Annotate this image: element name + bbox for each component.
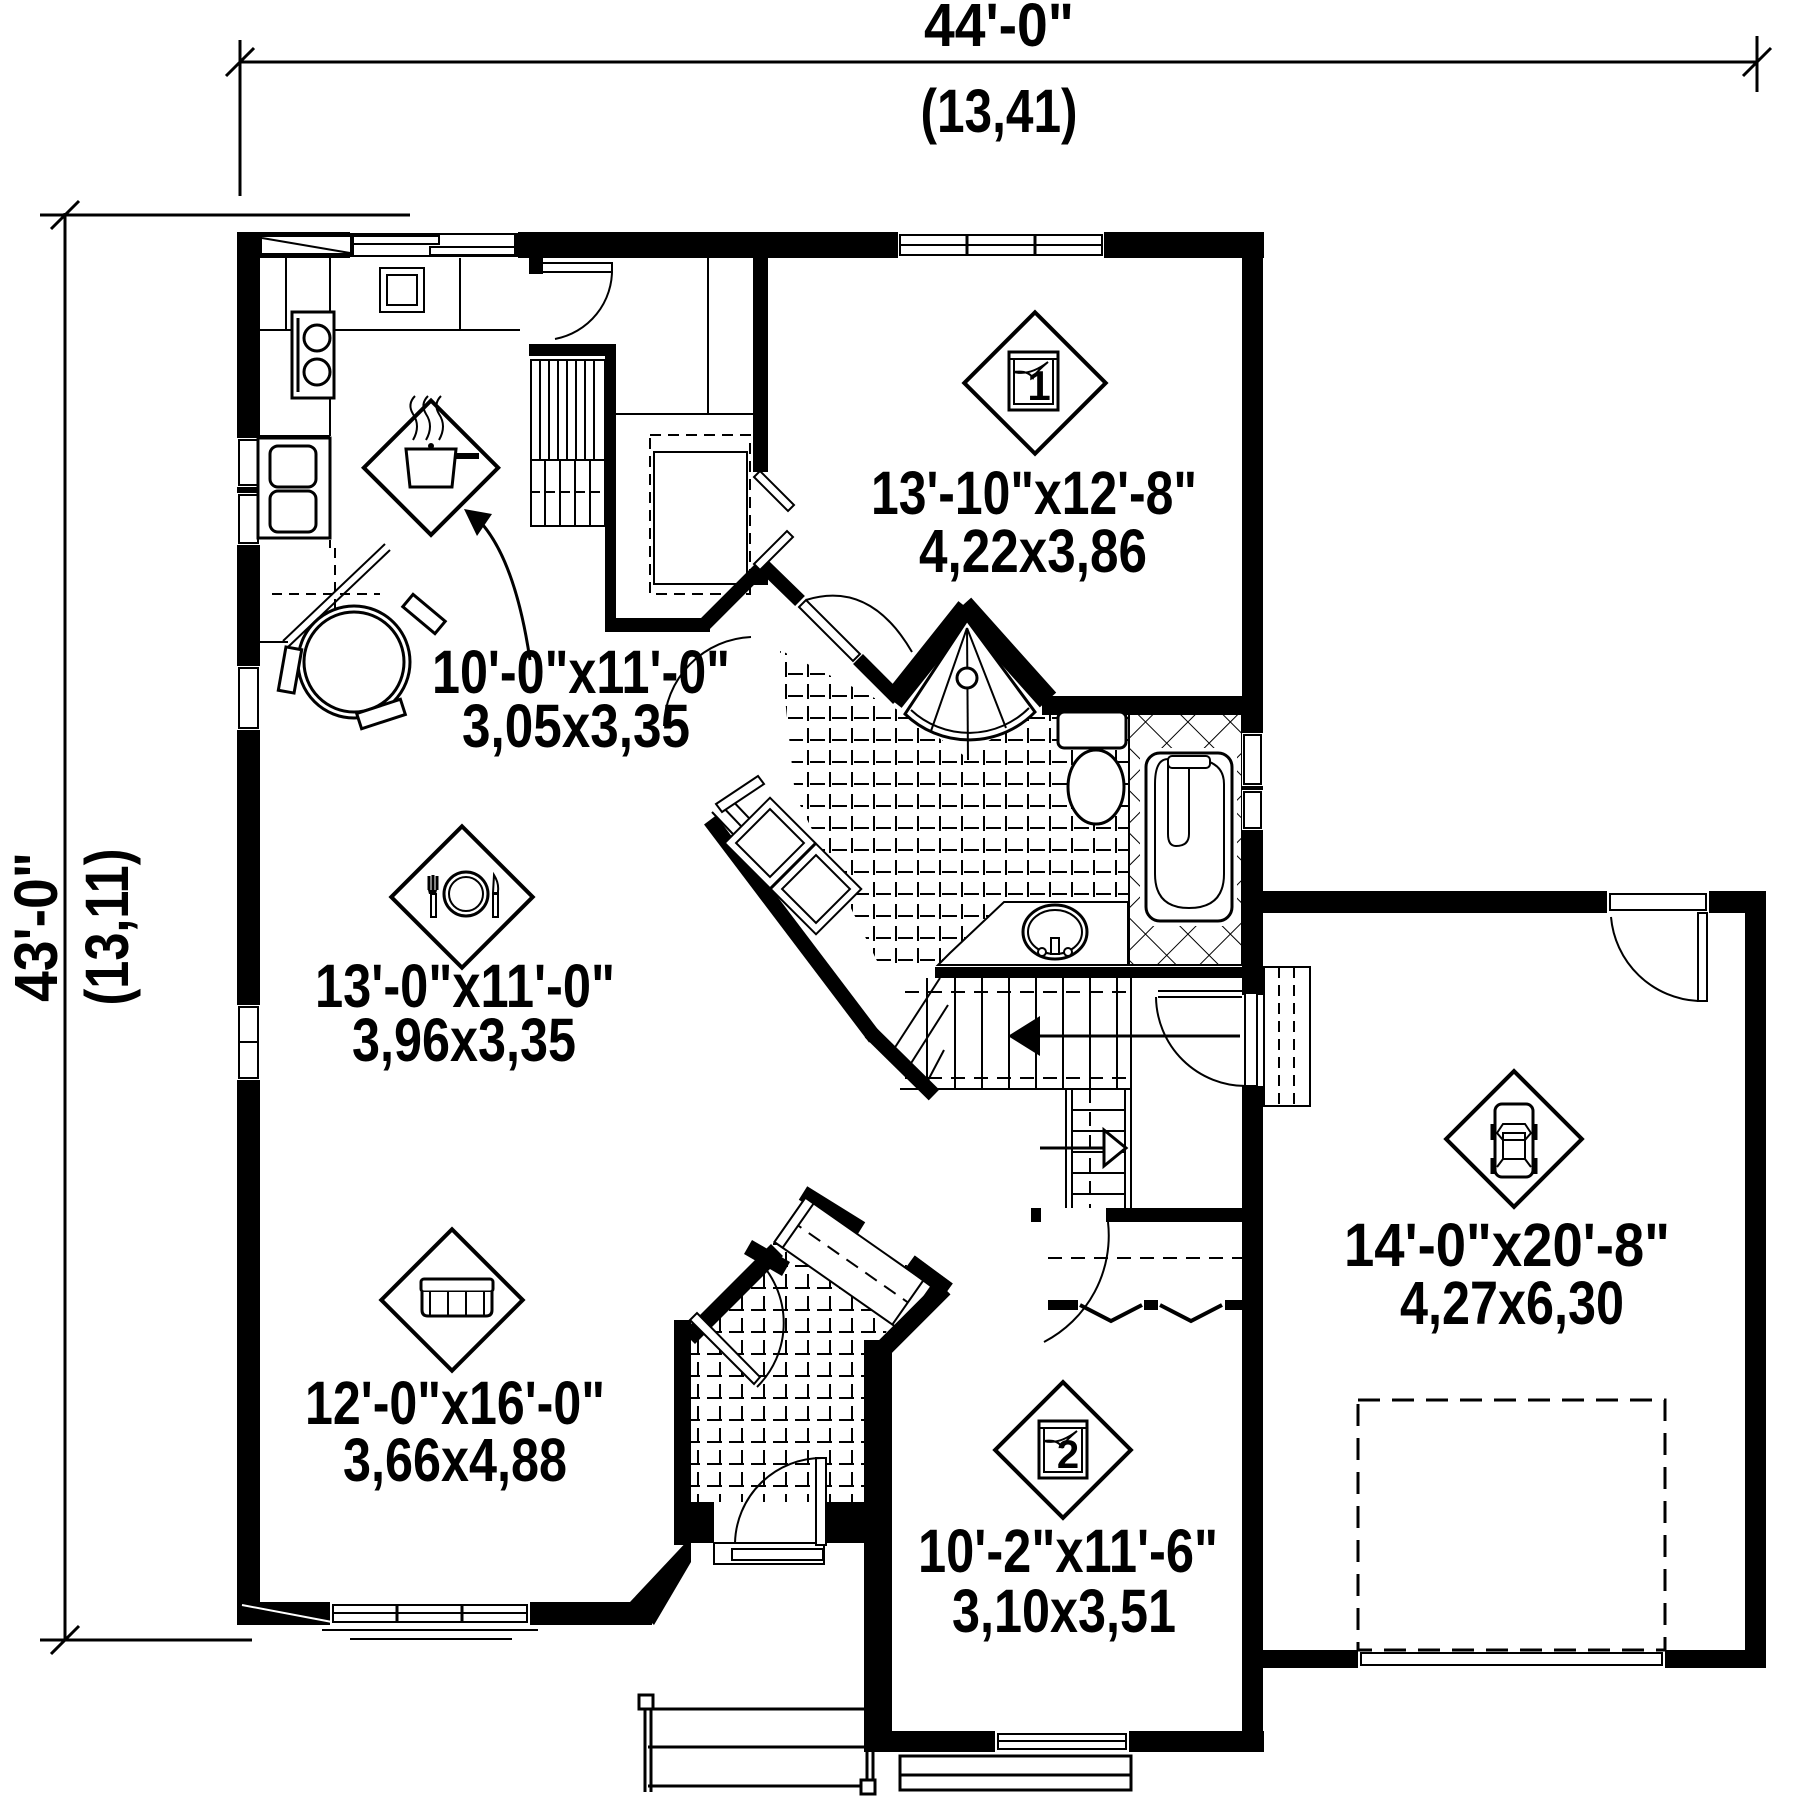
svg-text:3,66x4,88: 3,66x4,88 (343, 1426, 567, 1494)
svg-text:10'-2"x11'-6": 10'-2"x11'-6" (918, 1517, 1218, 1585)
svg-text:44'-0": 44'-0" (924, 0, 1074, 59)
svg-text:4,22x3,86: 4,22x3,86 (919, 517, 1147, 585)
svg-text:3,05x3,35: 3,05x3,35 (462, 692, 690, 760)
svg-text:3,96x3,35: 3,96x3,35 (352, 1006, 576, 1074)
svg-text:1: 1 (1027, 362, 1050, 409)
svg-text:43'-0": 43'-0" (2, 852, 70, 1002)
svg-text:3,10x3,51: 3,10x3,51 (952, 1577, 1176, 1645)
svg-text:2: 2 (1057, 1433, 1079, 1477)
svg-text:(13,41): (13,41) (921, 77, 1078, 145)
svg-text:4,27x6,30: 4,27x6,30 (1400, 1269, 1624, 1337)
svg-text:(13,11): (13,11) (73, 849, 141, 1006)
